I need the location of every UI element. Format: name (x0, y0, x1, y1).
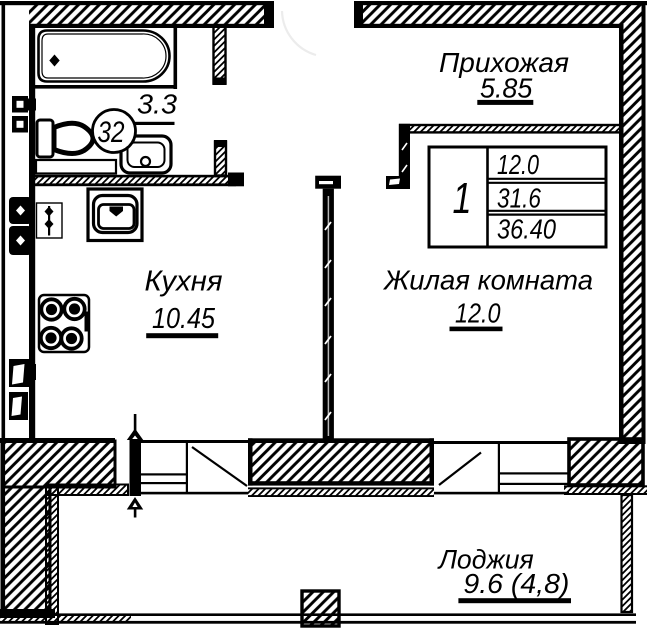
svg-text:Кухня: Кухня (145, 266, 223, 298)
svg-text:31.6: 31.6 (497, 183, 541, 214)
svg-text:36.40: 36.40 (497, 214, 556, 245)
svg-text:Жилая комната: Жилая комната (382, 265, 593, 296)
svg-text:12.0: 12.0 (455, 297, 501, 328)
svg-text:12.0: 12.0 (497, 149, 539, 180)
svg-text:9.6 (4,8): 9.6 (4,8) (463, 568, 569, 599)
svg-text:1: 1 (453, 174, 472, 223)
svg-text:10.45: 10.45 (152, 303, 216, 335)
svg-text:32: 32 (98, 116, 125, 149)
svg-text:5.85: 5.85 (480, 72, 533, 103)
svg-text:3.3: 3.3 (137, 89, 177, 120)
